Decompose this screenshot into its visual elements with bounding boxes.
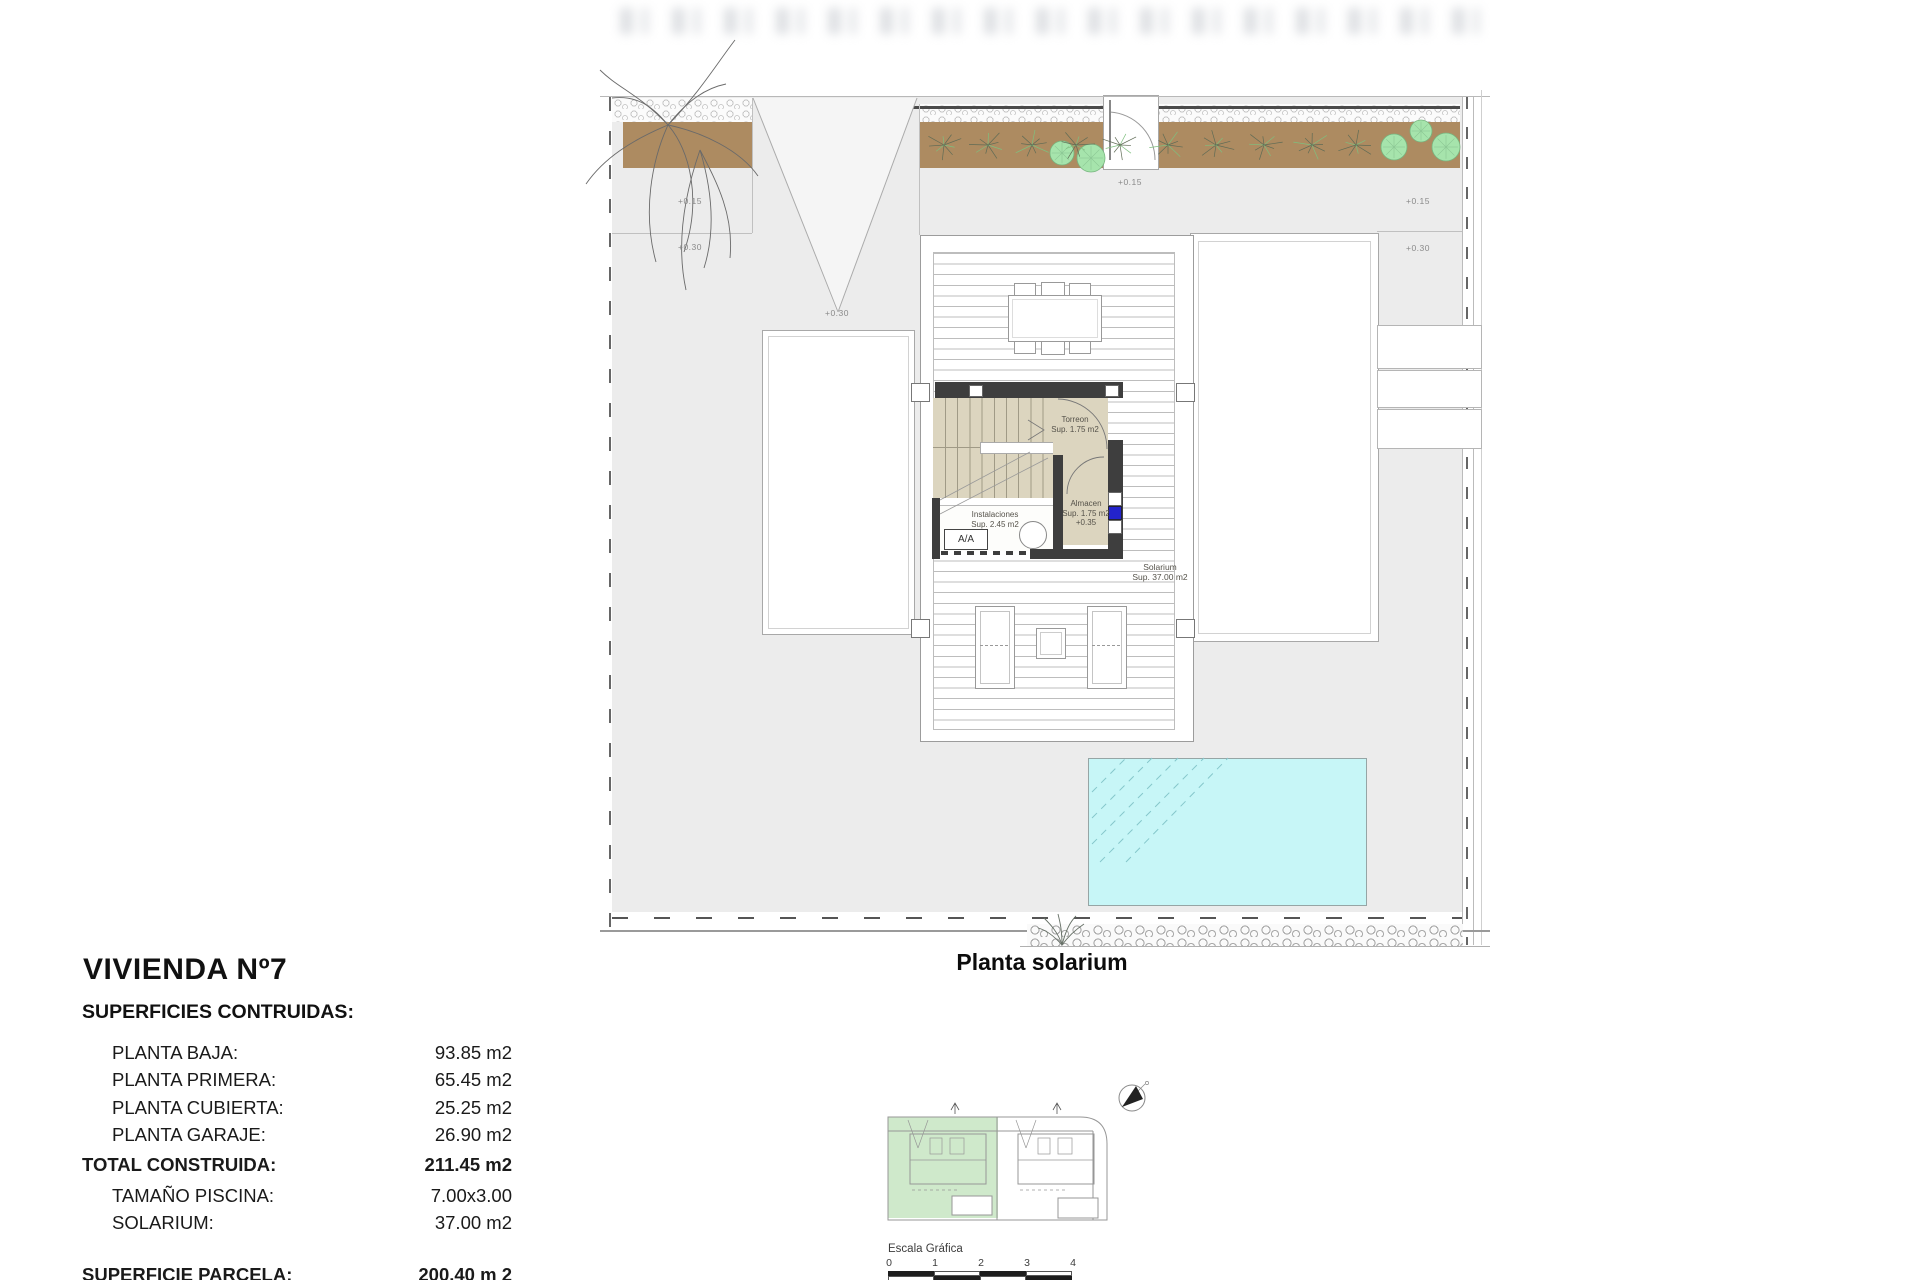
plan-caption: Planta solarium [900, 949, 1184, 976]
row-value: 93.85 m2 [435, 1041, 512, 1065]
stair-landing-slot [980, 442, 1064, 454]
table-row: PLANTA BAJA: 93.85 m2 [82, 1041, 512, 1065]
row-value: 25.25 m2 [435, 1096, 512, 1120]
column-marker [1176, 383, 1195, 402]
row-label: SUPERFICIE PARCELA: [82, 1263, 292, 1280]
scale-bar-label: Escala Gráfica [888, 1243, 963, 1255]
spot-level: +0.15 [1108, 177, 1152, 187]
street-wall-line [912, 106, 1103, 109]
rubble-strip [1027, 924, 1463, 947]
kerb-line [752, 98, 753, 233]
sun-lounger [975, 606, 1015, 689]
kerb-line [1377, 231, 1462, 232]
spot-level: +0.30 [815, 308, 859, 318]
scale-tick: 0 [880, 1257, 898, 1269]
roof-left [762, 330, 915, 635]
core-wall-bottom [1030, 549, 1123, 559]
boundary-bottom-line [1020, 946, 1490, 947]
row-value: 26.90 m2 [435, 1123, 512, 1147]
exterior-steps [1377, 409, 1482, 449]
gravel-band-left [612, 98, 752, 122]
column-marker [1176, 619, 1195, 638]
exterior-steps [1377, 370, 1482, 408]
planting-bed-right [920, 122, 1460, 168]
planting-bed-left [623, 122, 752, 168]
sun-lounger [1087, 606, 1127, 689]
core-wall-left [932, 498, 940, 559]
swimming-pool [1088, 758, 1367, 906]
row-label: PLANTA PRIMERA: [82, 1068, 276, 1092]
roof-right [1190, 233, 1379, 642]
scale-bar: Escala Gráfica 0 1 2 3 4 [870, 1240, 1130, 1280]
table-row: PLANTA PRIMERA: 65.45 m2 [82, 1068, 512, 1092]
scan-ghost-marks [620, 8, 1480, 34]
scale-tick: 2 [972, 1257, 990, 1269]
scale-tick: 1 [926, 1257, 944, 1269]
wall-column [1105, 385, 1119, 397]
spot-level: +0.15 [668, 196, 712, 206]
row-label: TOTAL CONSTRUIDA: [82, 1153, 276, 1177]
street-wall-line [1157, 106, 1460, 109]
aa-unit-label: A/A [958, 534, 974, 545]
boundary-right-line [1473, 97, 1474, 945]
row-value: 200.40 m 2 [418, 1263, 512, 1280]
scale-tick: 4 [1064, 1257, 1082, 1269]
table-row: SOLARIUM: 37.00 m2 [82, 1211, 512, 1235]
vent-hatch [941, 551, 1029, 555]
spot-level: +0.30 [1396, 243, 1440, 253]
table-row: PLANTA GARAJE: 26.90 m2 [82, 1123, 512, 1147]
aa-unit-box: A/A [944, 529, 988, 550]
room-label-solarium: Solarium Sup. 37.00 m2 [1118, 563, 1202, 582]
title-block-subtitle: SUPERFICIES CONTRUIDAS: [82, 1001, 354, 1024]
core-wall-top [935, 382, 1123, 398]
table-row: PLANTA CUBIERTA: 25.25 m2 [82, 1096, 512, 1120]
spot-level: +0.30 [668, 242, 712, 252]
row-label: TAMAÑO PISCINA: [82, 1184, 274, 1208]
kerb-line [919, 104, 920, 235]
boundary-dashed-left [609, 97, 611, 930]
scale-tick: 3 [1018, 1257, 1036, 1269]
column-marker [911, 383, 930, 402]
exterior-steps [1377, 325, 1482, 369]
boundary-right-line [1481, 90, 1482, 945]
column-marker [911, 619, 930, 638]
row-value: 7.00x3.00 [431, 1184, 512, 1208]
row-value: 211.45 m2 [425, 1153, 512, 1177]
row-label: PLANTA GARAJE: [82, 1123, 266, 1147]
table-row: TAMAÑO PISCINA: 7.00x3.00 [82, 1184, 512, 1208]
row-label: PLANTA BAJA: [82, 1041, 238, 1065]
boundary-top-line [600, 96, 1490, 97]
page-title: VIVIENDA Nº7 [83, 953, 287, 987]
title-block: VIVIENDA Nº7 SUPERFICIES CONTRUIDAS: PLA… [0, 0, 560, 1280]
kerb-line [612, 233, 752, 234]
spot-level: +0.15 [1396, 196, 1440, 206]
side-table [1036, 628, 1066, 659]
row-value: 37.00 m2 [435, 1211, 512, 1235]
dining-table [1008, 295, 1102, 342]
room-label-almacen: Almacen Sup. 1.75 m2 +0.35 [1058, 499, 1114, 528]
row-label: SOLARIUM: [82, 1211, 214, 1235]
boundary-dashed-right [1466, 97, 1468, 945]
table-row-parcela: SUPERFICIE PARCELA: 200.40 m 2 [82, 1263, 512, 1280]
key-map-highlight [888, 1117, 998, 1218]
entry-alcove [1103, 95, 1159, 170]
row-label: PLANTA CUBIERTA: [82, 1096, 284, 1120]
row-value: 65.45 m2 [435, 1068, 512, 1092]
wall-column [969, 385, 983, 397]
plan-sheet: A/A [0, 0, 1920, 1280]
boundary-right-line [1462, 97, 1463, 930]
boundary-dashed-bottom [612, 917, 1462, 919]
north-arrow-icon [1119, 1081, 1149, 1111]
room-label-torreon: Torreon Sup. 1.75 m2 [1040, 415, 1110, 434]
room-label-instalaciones: Instalaciones Sup. 2.45 m2 [950, 510, 1040, 529]
table-row-total: TOTAL CONSTRUIDA: 211.45 m2 [82, 1153, 512, 1177]
